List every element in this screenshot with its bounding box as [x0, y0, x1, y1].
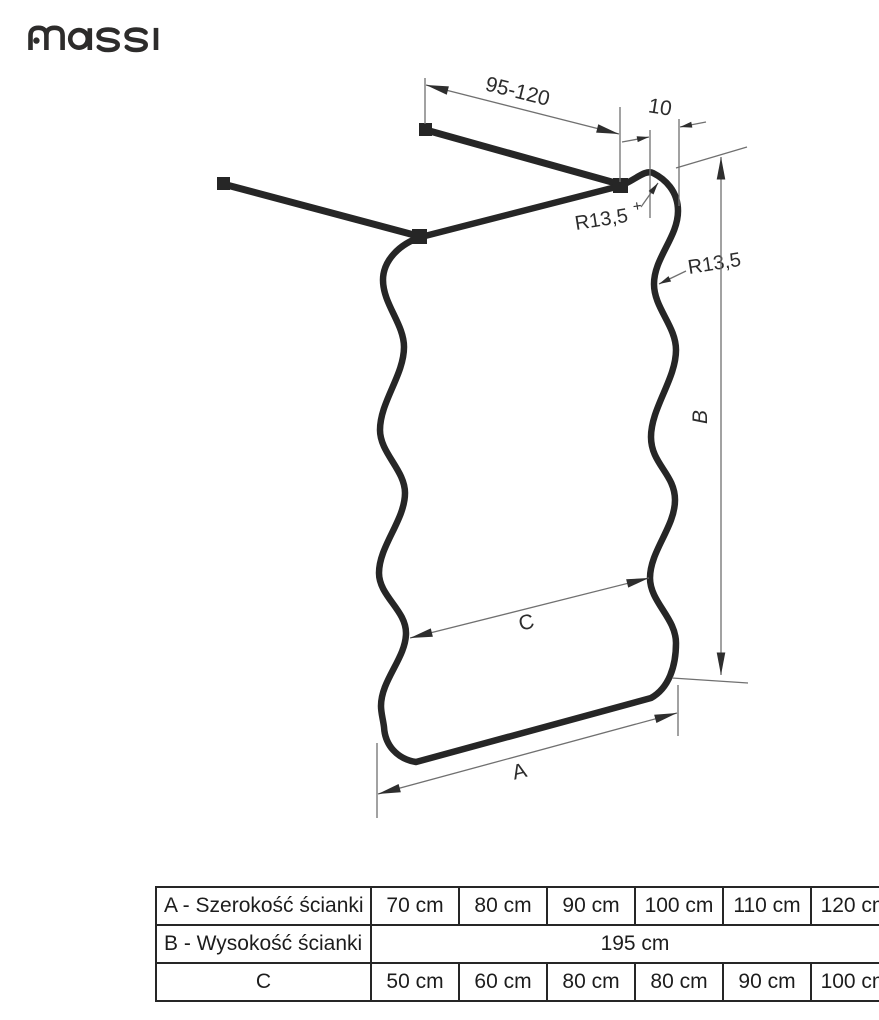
table-cell: 100 cm [635, 887, 723, 925]
extension-line [676, 147, 747, 168]
wall-anchor-top [419, 123, 432, 136]
table-cell: 90 cm [547, 887, 635, 925]
product-diagram-page: 95-120 10 R13,5 + R13,5 B C [0, 0, 879, 1020]
table-cell: 70 cm [371, 887, 459, 925]
shower-wall-drawing: 95-120 10 R13,5 + R13,5 B C [0, 0, 879, 880]
table-cell: 110 cm [723, 887, 811, 925]
table-cell: 80 cm [635, 963, 723, 1001]
dimension-label-height: B [689, 410, 712, 424]
support-bar-left [223, 184, 418, 236]
radius-top-mark: + [632, 197, 644, 215]
table-row-width: A - Szerokość ścianki 70 cm 80 cm 90 cm … [156, 887, 879, 925]
support-bar-top [426, 130, 619, 184]
arrow-line [680, 122, 706, 127]
table-cell: 80 cm [547, 963, 635, 1001]
table-row-height: B - Wysokość ścianki 195 cm [156, 925, 879, 963]
row-label-inner-width: C [156, 963, 371, 1001]
radius-side-label: R13,5 [686, 249, 742, 279]
dimension-label-offset: 10 [647, 94, 674, 120]
support-bars [223, 130, 619, 236]
row-label-height: B - Wysokość ścianki [156, 925, 371, 963]
mount-bracket-left [412, 229, 427, 244]
extension-line [672, 678, 748, 683]
dimension-label-inner-width: C [516, 610, 536, 636]
table-cell: 50 cm [371, 963, 459, 1001]
dimension-label-width: A [510, 759, 529, 785]
radius-top-label: R13,5 [573, 205, 629, 235]
radius-callout-side: R13,5 [659, 249, 743, 284]
arrow-line [622, 137, 649, 142]
leader-line [659, 271, 686, 284]
table-row-inner-width: C 50 cm 60 cm 80 cm 80 cm 90 cm 100 cm [156, 963, 879, 1001]
glass-panel-outline [379, 172, 678, 762]
table-cell: 90 cm [723, 963, 811, 1001]
dimension-line [378, 713, 677, 794]
table-cell: 60 cm [459, 963, 547, 1001]
table-cell-merged: 195 cm [371, 925, 879, 963]
size-table: A - Szerokość ścianki 70 cm 80 cm 90 cm … [155, 886, 879, 1002]
table-cell: 80 cm [459, 887, 547, 925]
table-cell: 120 cm [811, 887, 879, 925]
dimension-label-bar-range: 95-120 [483, 73, 552, 111]
wall-anchor-left [217, 177, 230, 190]
row-label-width: A - Szerokość ścianki [156, 887, 371, 925]
table-cell: 100 cm [811, 963, 879, 1001]
